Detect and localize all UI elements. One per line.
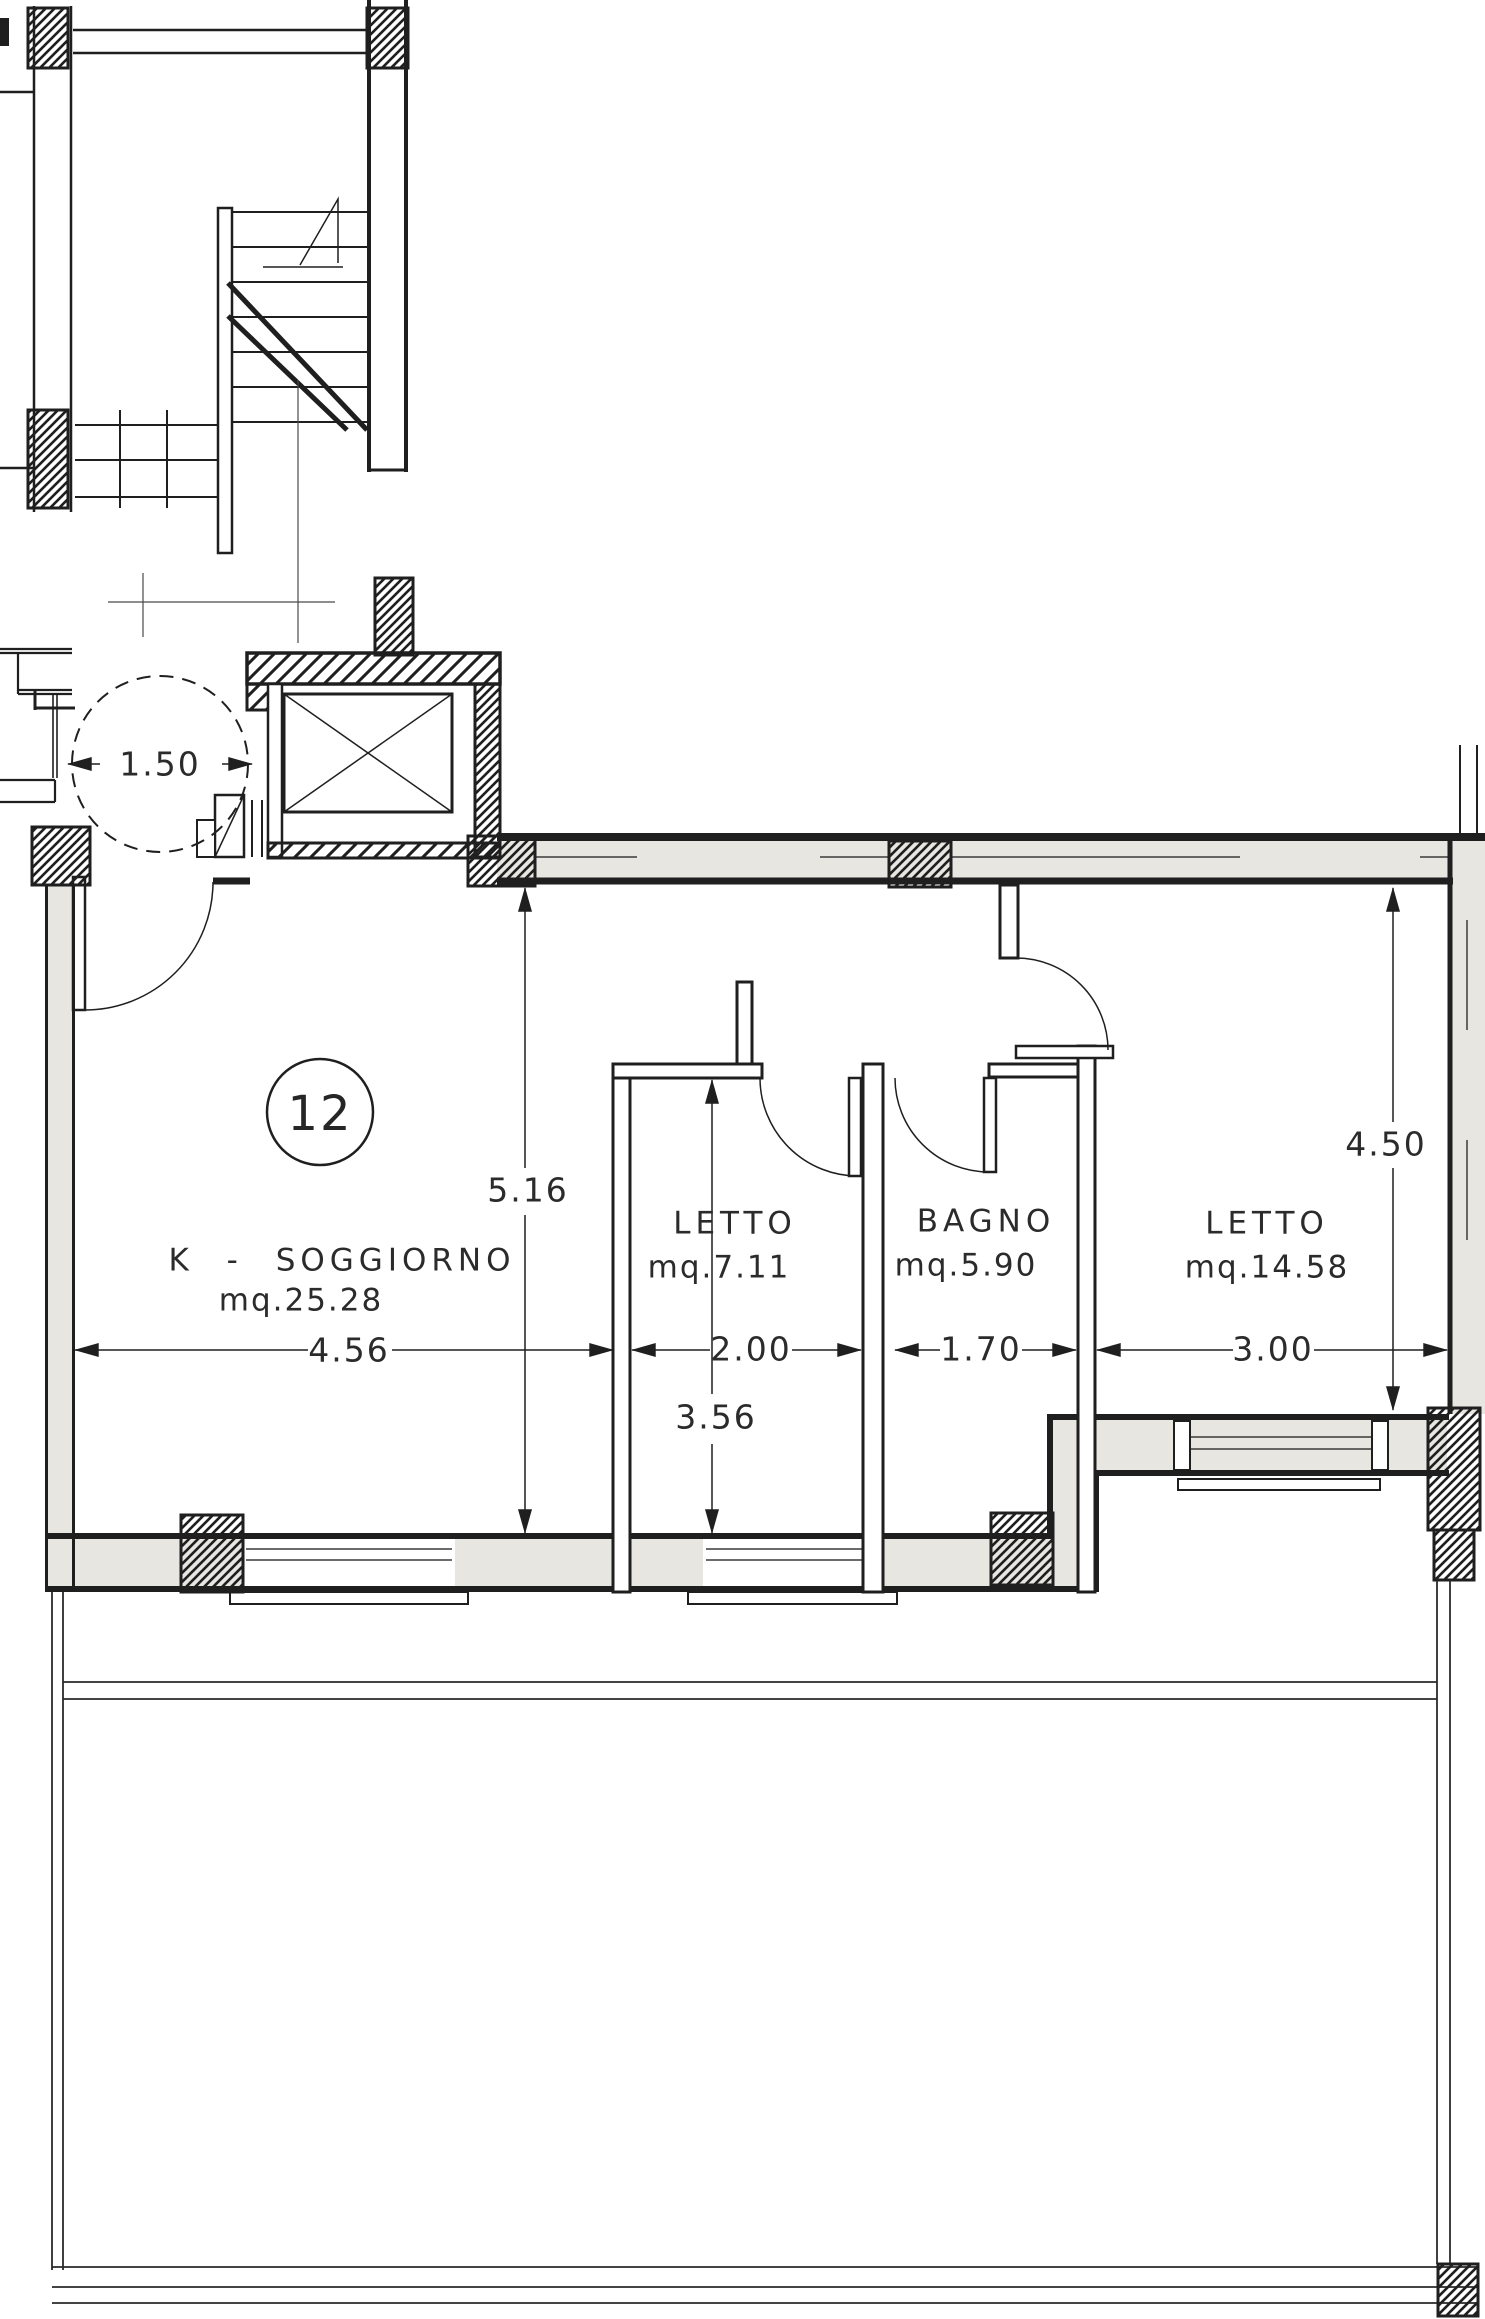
room-area-soggiorno: mq.25.28	[219, 1286, 383, 1317]
elevator-top-column	[375, 578, 413, 655]
letto1-door-jamb	[737, 982, 752, 1064]
floor-plan-drawing	[0, 0, 1485, 2319]
room-label-soggiorno: K - SOGGIORNO	[168, 1246, 515, 1277]
room-label-letto1: LETTO	[673, 1209, 797, 1240]
dim-turning-circle: 1.50	[119, 748, 200, 781]
room-area-letto2: mq.14.58	[1185, 1253, 1349, 1284]
dim-bagno-width: 1.70	[940, 1333, 1021, 1366]
room-area-bagno: mq.5.90	[895, 1251, 1038, 1282]
letto1-top-wall	[613, 1064, 762, 1078]
dim-letto2-height: 4.50	[1345, 1128, 1426, 1161]
letto2-door-swing	[1016, 958, 1108, 1050]
dim-letto1-height: 3.56	[675, 1401, 756, 1434]
letto1-left-wall	[613, 1064, 630, 1592]
letto1-door-leaf	[849, 1078, 861, 1176]
staircase	[0, 0, 408, 553]
bagno-right-wall	[1078, 1046, 1095, 1592]
bagno-door-leaf	[984, 1078, 996, 1172]
entrance-door-swing	[85, 882, 213, 1010]
window-sill	[1178, 1479, 1380, 1490]
letto2-door-leaf	[1016, 1046, 1113, 1058]
dim-soggiorno-height: 5.16	[487, 1174, 568, 1207]
bagno-door-swing	[895, 1078, 990, 1172]
floor-plan-page: 12 1.50 K - SOGGIORNO mq.25.28 LETTO mq.…	[0, 0, 1485, 2319]
elevator	[197, 578, 500, 858]
corridor-wall-stubs	[0, 649, 75, 802]
window-sill	[688, 1592, 897, 1604]
bagno-left-wall	[863, 1064, 883, 1592]
room-label-bagno: BAGNO	[917, 1207, 1056, 1238]
letto2-door-jamb	[1000, 885, 1018, 958]
balcony	[52, 1580, 1478, 2316]
window-sill	[230, 1592, 468, 1604]
dim-letto2-width: 3.00	[1232, 1333, 1313, 1366]
letto1-door-swing	[760, 1078, 858, 1176]
dim-soggiorno-width: 4.56	[308, 1334, 389, 1367]
room-area-letto1: mq.7.11	[648, 1253, 791, 1284]
room-label-letto2: LETTO	[1205, 1209, 1329, 1240]
dim-letto1-width: 2.00	[710, 1333, 791, 1366]
apartment-number: 12	[287, 1090, 352, 1138]
